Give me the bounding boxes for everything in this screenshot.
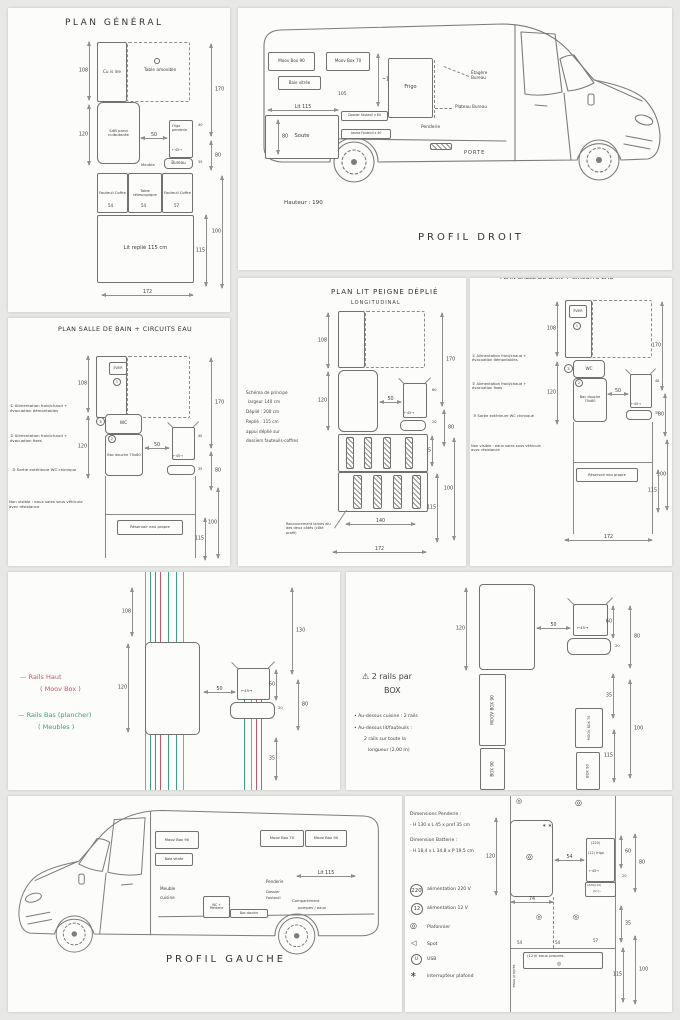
sketch-label: BOX 90 [586,764,591,778]
sketch-label: — Rails Haut [20,674,62,682]
sketch-label: PROFIL GAUCHE [166,954,286,966]
sketch-box: ÉVIER [569,305,587,318]
sketch-label: PLAN LIT PEIGNE DÉPLIÉ [331,288,438,296]
sketch-label: eaux propres [512,965,516,988]
sketch-label: 20 [432,420,437,424]
sketch-box [573,604,608,636]
circled-number: 3 [564,364,573,373]
dimension: 130 [292,588,293,674]
dimension: 108 [88,356,89,412]
sketch-label: PROFIL DROIT [418,232,524,244]
sketch-line [567,598,575,606]
sketch-label: 20 [622,874,626,878]
sketch-box: Dossier Fauteuil x 80 [341,111,388,121]
sketch-box [400,420,426,431]
sketch-box [365,311,425,368]
dimension: 108 [328,313,329,368]
sketch-line [649,368,656,375]
dimension: 80 [444,410,445,446]
sketch-line [424,377,431,384]
dimension: 172 [565,540,652,541]
dimension: Lit 115 [268,110,338,111]
sketch-plan-salle-de-bain-crop: PLAN SALLE DE BAIN + CIRCUITS EAUÉVIER11… [470,278,672,566]
dimension: 120 [466,588,467,670]
sketch-line [553,897,554,948]
sketch-label: USB [427,957,436,963]
sketch-line [434,60,435,118]
sketch-line [195,476,196,558]
circled-number: 2 [575,379,583,387]
sketch-label: Plateau Bureau [455,104,487,109]
sketch-label: 2 rails sur toute la [364,737,406,743]
sketch-label: ←45→ [172,148,182,152]
sketch-label: MOOV BOX 70 [587,716,591,741]
dimension: 140 [346,524,415,525]
sketch-label: Penderie [421,125,440,130]
sketch-label: ←45→ [241,689,252,694]
sketch-label: 40 [198,123,202,127]
sketch-box [430,143,452,150]
sketch-box: Assise Fauteuil x 40 [341,129,391,139]
sketch-line [105,476,106,558]
dimension: 120 [89,105,90,165]
dimension: ~140 [378,54,379,106]
sketch-label: 54 [517,941,522,946]
sketch-plan-lit-peigne: PLAN LIT PEIGNE DÉPLIÉLONGITUDINAL108120… [238,278,466,566]
dimension: 172 [333,552,426,553]
sketch-label: ∗ ∗ [542,823,552,829]
sketch-box [393,475,402,509]
sketch-line [192,421,199,428]
sketch-label: 57 [593,939,598,944]
sketch-label: cuisine [160,895,175,900]
sketch-label: PLAN SALLE DE BAIN + CIRCUITS EAU [58,326,192,334]
sketch-box [145,642,200,735]
circled-number: 12 [411,903,423,915]
dimension: 35 [432,436,433,466]
dimension: 80 [665,394,666,436]
sketch-label: 40 [655,380,659,384]
dimension: 50 [145,448,169,449]
sketch-label: Non visible : eaux sales sous véhicule a… [9,500,93,509]
sketch-box: Moov Box 70 [260,830,304,847]
sketch-box: Réservoir eau propre [576,468,638,482]
sketch-label: Recouvrement lames alu des deux côtés (c… [286,522,334,535]
dimension: 120 [328,372,329,430]
sketch-label: ◁ [411,939,416,947]
sketch-box: WC [105,414,142,434]
sketch-label: ◎ [557,961,561,967]
dimension: 108 [132,588,133,636]
sketch-box: Cu is ine [97,42,127,102]
sketch-label: ( Meubles ) [38,724,74,732]
sketch-label: Hauteur : 190 [284,200,323,207]
circled-number [154,58,160,64]
sketch-label: 35 [198,467,202,471]
dimension: 120 [496,818,497,895]
sketch-label: ◎ [573,913,579,921]
sketch-label: — Rails Bas (plancher) [18,712,91,720]
dimension: 54 [555,860,584,861]
dimension: 100 [630,680,631,778]
dimension: 100 [635,936,636,1004]
sketch-box: ÉVIER [109,362,127,375]
sketch-line [267,661,275,669]
dimension: 80 [635,834,636,892]
sketch-label: pompes / eaux [298,906,326,911]
sketch-box: Baie vitrée [155,853,193,866]
sketch-label: (U) ▷ [593,890,601,894]
sketch-label: Non visible : eaux sales sous véhicule a… [471,444,549,453]
dimension: 50 [380,402,401,403]
dimension: 100 [218,488,219,558]
dimension: 50 [141,138,167,139]
sketch-label: ←45→ [577,626,588,631]
sketch-box: Bac douche [230,909,268,918]
dimension: 170 [662,302,663,390]
sketch-label: Meuble [160,886,175,891]
dimension: 35 [621,906,622,942]
sketch-label: ←45→ [589,869,599,873]
circled-number: 3 [96,417,105,426]
sketch-plan-electricite: Dimensions Penderie :- H 130 x L 45 x pr… [405,796,672,1012]
sketch-label: ③ Sortie extérieure WC chimique [473,414,535,418]
sketch-label: Spot [427,942,437,948]
sketch-label: 35 [198,160,202,164]
sketch-rails-detail: ←45→5010812013080602035— Rails Haut( Moo… [8,572,340,790]
sketch-plan-general: PLAN GÉNÉRALCu is ineTable amovible10812… [8,8,230,312]
dimension: 74 [511,902,553,903]
sketch-line [435,108,452,109]
sketch-line [231,662,239,670]
circled-number: 2 [108,435,116,443]
dimension: 170 [211,44,212,136]
sketch-line [652,422,653,534]
sketch-label: Schéma de principe [246,390,288,395]
sketch-label: BOX [384,686,401,696]
sketch-label: 57 [174,204,179,209]
sketch-label: Table amovible [143,68,177,73]
dimension: 172 [102,295,193,296]
sketch-label: PORTE [464,150,485,156]
dimension: 120 [88,416,89,478]
sketch-box [167,465,195,475]
sketch-line [510,948,615,949]
sketch-label: Plafonnier [427,925,450,931]
sketch-rails-notes: 12050←45→60208035100115MOOV BOX 90BOX 90… [346,572,672,790]
dimension: 120 [128,644,129,732]
dimension: 120 [557,362,558,424]
dimension: 60 [613,606,614,638]
dimension: 108 [89,42,90,100]
sketch-box: WC [573,360,605,378]
dimension: 100 [667,440,668,510]
dimension: 100 [454,438,455,540]
sketch-box [338,370,378,432]
dimension: 50 [537,628,570,629]
dimension: 35 [276,738,277,780]
sketch-box [567,638,611,655]
sketch-box [592,300,652,358]
dimension: 50 [608,394,628,395]
sketch-box [626,410,652,420]
dimension: 115 [437,474,438,542]
sketch-label: (220)(12) [587,884,601,888]
dimension: 60 [621,836,622,868]
sketch-label: Étagère Bureau [471,70,501,80]
sketch-box [230,702,275,719]
sketch-label: ←45→ [631,402,641,406]
sketch-box: SdB paroi culbutante [97,102,140,164]
sketch-label: Compartiment [292,899,319,904]
sketch-box [383,437,391,469]
sketch-label: (12)V eaux propres [527,954,564,959]
sketch-box: Frigo [388,58,433,118]
sketch-label: ② Alimentation froid/chaud + évacuation … [10,434,86,443]
sketch-label: 40 [198,434,202,438]
sketch-label: Meuble [141,163,155,168]
sketch-label: 54 [108,204,113,209]
sketch-line [625,369,632,376]
sketch-label: ③ Sortie extérieure WC chimique [12,468,78,473]
dimension: 80 [211,141,212,170]
sketch-label: ⚠ 2 rails par [362,672,412,682]
sketch-label: MOOV BOX 90 [489,695,494,725]
sketch-label: PLAN GÉNÉRAL [65,18,164,29]
dimension: 108 [557,302,558,356]
sketch-box: Moov Box 90 [268,52,315,71]
dimension: 115 [206,215,207,286]
dimension: 170 [442,313,443,406]
sketch-label: alimentation 220 V [427,887,471,893]
dimension: 115 [658,470,659,512]
sketch-label: 20 [278,706,283,711]
sketch-box: Moov Box 70 [326,52,370,71]
sketch-label: 20 [615,644,620,649]
sketch-line [573,462,652,463]
sketch-box: Baie vitrée [278,76,321,90]
sketch-label: dossiers fauteuils-coffres [246,438,298,443]
sketch-label: appui déplié sur [246,429,280,434]
sketch-label: ◎ [575,798,582,808]
sketch-label: ←45→ [173,454,183,458]
dimension: 80 [630,606,631,668]
sketch-box [237,668,270,700]
sketch-label: interrupteur plafond [427,974,474,980]
sketch-box [364,437,372,469]
sketch-label: Frigo penderie [172,124,190,132]
sketch-line [605,597,613,605]
sketch-label: ◎ [410,921,417,931]
sketch-box [338,311,365,368]
sketch-label: Dimension Batterie : [410,838,457,844]
sketch-label: LONGITUDINAL [351,300,401,306]
sketch-label: ∗ [410,970,417,980]
sketch-label: ◎ [536,913,542,921]
sketch-box: Moov Box 90 [155,831,199,849]
sketch-profil-droit: Moov Box 90Moov Box 70Baie vitrée105~140… [238,8,672,270]
dimension: 115 [623,948,624,1002]
sketch-box: Moov Box 90 [305,830,347,847]
sketch-box: WC + Penderie [203,896,230,918]
sketch-label: 105 [338,92,347,97]
sketch-label: Penderie [266,880,283,885]
dimension: 170 [211,358,212,448]
circled-number: 1 [113,378,121,386]
sketch-box: Réservoir eau propre [117,520,183,535]
sketch-box [405,437,413,469]
sketch-label: • Au-dessus cuisine : 2 rails [354,714,418,720]
sketch-box [346,437,354,469]
dimension: 60 [276,670,277,700]
sketch-line [105,514,195,515]
sketch-label: ① Alimentation froid/chaud + évacuation … [10,404,86,413]
sketch-label: PLAN SALLE DE BAIN + CIRCUITS EAU [500,278,614,281]
dimension: 115 [205,518,206,560]
dimension: 80 [298,680,299,730]
sketch-label: (12) frigo [588,851,604,855]
sketch-box [479,584,535,670]
sketch-label: 54 [141,204,146,209]
sketch-label: BOX 90 [489,761,494,776]
sketch-line [573,422,574,534]
circled-number: U [411,954,422,965]
sketch-label: longueur (2,00 m) [368,748,410,754]
sketch-label: ( Moov Box ) [40,686,81,694]
sketch-box: Bureau [164,158,193,169]
sketch-label: ② Alimentation froid/chaud + évacuation … [472,382,542,391]
sketch-label: 60 [432,388,437,392]
sketch-box [127,356,190,418]
sketch-box [353,475,362,509]
sketch-profil-gauche: Moov Box 90Baie vitréeMeublecuisineMoov … [8,796,402,1012]
sketch-plan-salle-de-bain: PLAN SALLE DE BAIN + CIRCUITS EAUÉVIER11… [8,318,230,566]
dimension: 100 [222,176,223,288]
dimension: Lit 115 [297,876,355,877]
sketch-label: ←45→ [404,411,414,415]
sketch-label: ① Alimentation froid/chaud + évacuation … [472,354,542,363]
dimension: 80 [211,452,212,490]
dimension: 80 [278,120,279,154]
sketch-label: Déplié : 200 cm [246,409,279,414]
sketch-box [373,475,382,509]
circled-number: 1 [573,322,581,330]
sketch-label: • Au-dessus lit/fauteuils : [354,726,412,732]
dimension: 35 [613,674,614,718]
sketch-label: alimentation 12 V [427,906,468,912]
sketch-label: Fauteuil [266,896,280,900]
sketch-box [412,475,421,509]
sketch-label: Replié : 115 cm [246,419,279,424]
sketch-label: - H 18,4 x L 34,8 x P 19,5 cm [410,849,474,854]
sketch-label: ◎ [516,797,522,805]
sketch-label: - H 130 x L 45 x prof 35 cm [410,823,470,828]
sketch-label: 54 [555,941,560,946]
sketch-label: largeur 140 cm [248,399,280,404]
sketch-label: Dimensions Penderie : [410,812,461,818]
sketch-line [615,796,616,1012]
circled-number: 220 [410,884,423,897]
sketch-line [398,378,405,385]
sketch-box: Lit replié 115 cm [97,215,194,283]
sketch-line [167,422,174,429]
sketch-label: Dossier [266,890,280,894]
sketch-label: (220) [591,841,600,845]
dimension: 50 [204,692,235,693]
dimension: 115 [614,730,615,782]
sketch-label: ◎ [526,852,533,862]
scanned-sketch-collage: { "page": { "bg": "#e8e8e7", "paper": "#… [0,0,680,1020]
